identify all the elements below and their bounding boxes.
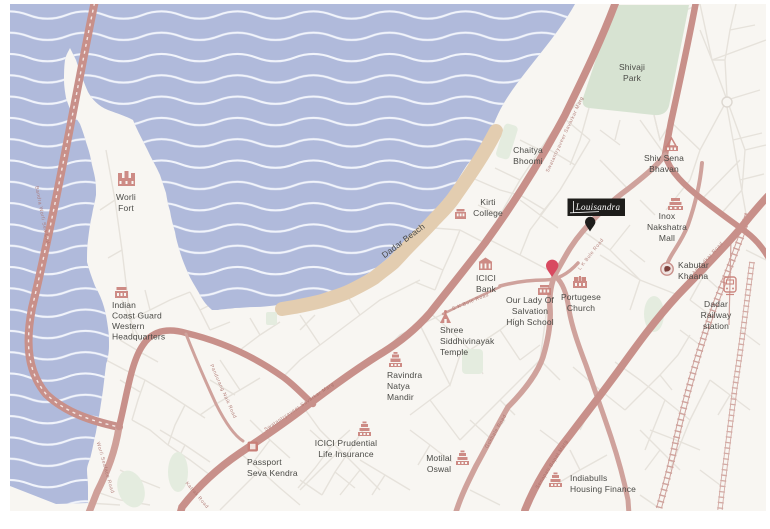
- svg-text:Coast Guard: Coast Guard: [112, 311, 162, 321]
- svg-text:Passport: Passport: [247, 457, 282, 467]
- svg-text:Louisandra: Louisandra: [575, 202, 621, 212]
- svg-text:Portugese: Portugese: [561, 292, 601, 302]
- svg-text:College: College: [473, 208, 503, 218]
- svg-text:Railway: Railway: [701, 310, 732, 320]
- svg-text:Nakshatra: Nakshatra: [647, 222, 687, 232]
- svg-text:Kabutar: Kabutar: [678, 260, 709, 270]
- svg-text:Church: Church: [567, 303, 595, 313]
- svg-text:Chaitya: Chaitya: [513, 145, 543, 155]
- svg-text:Khaana: Khaana: [678, 271, 708, 281]
- svg-text:Indian: Indian: [112, 300, 136, 310]
- svg-text:Shivaji: Shivaji: [619, 62, 645, 72]
- svg-text:Shree: Shree: [440, 325, 464, 335]
- svg-text:station: station: [703, 321, 729, 331]
- svg-text:ICICI Prudential: ICICI Prudential: [315, 438, 377, 448]
- svg-text:Salvation: Salvation: [512, 306, 548, 316]
- svg-text:Mandir: Mandir: [387, 392, 414, 402]
- svg-text:Our Lady Of: Our Lady Of: [506, 295, 554, 305]
- svg-text:Worli: Worli: [116, 192, 136, 202]
- svg-text:Motilal: Motilal: [426, 453, 452, 463]
- svg-text:Ravindra: Ravindra: [387, 370, 422, 380]
- svg-text:Western: Western: [112, 321, 145, 331]
- svg-text:Park: Park: [623, 73, 642, 83]
- svg-text:Bank: Bank: [476, 284, 497, 294]
- svg-text:Life Insurance: Life Insurance: [318, 449, 374, 459]
- svg-text:Fort: Fort: [118, 203, 134, 213]
- svg-text:Oswal: Oswal: [427, 464, 451, 474]
- svg-text:Housing Finance: Housing Finance: [570, 484, 636, 494]
- svg-text:Temple: Temple: [440, 347, 468, 357]
- svg-text:Seva Kendra: Seva Kendra: [247, 468, 298, 478]
- svg-text:Indiabulls: Indiabulls: [570, 473, 607, 483]
- svg-text:Mall: Mall: [659, 233, 675, 243]
- svg-text:Headquarters: Headquarters: [112, 332, 165, 342]
- svg-text:Inox: Inox: [659, 211, 676, 221]
- svg-text:Kirti: Kirti: [480, 197, 495, 207]
- svg-text:Dadar: Dadar: [704, 299, 728, 309]
- svg-text:Siddhivinayak: Siddhivinayak: [440, 336, 495, 346]
- svg-text:High School: High School: [506, 317, 553, 327]
- svg-text:Bhavan: Bhavan: [649, 164, 679, 174]
- svg-text:Natya: Natya: [387, 381, 410, 391]
- svg-text:Shiv Sena: Shiv Sena: [644, 153, 684, 163]
- svg-text:ICICI: ICICI: [476, 273, 496, 283]
- svg-text:Bhoomi: Bhoomi: [513, 156, 543, 166]
